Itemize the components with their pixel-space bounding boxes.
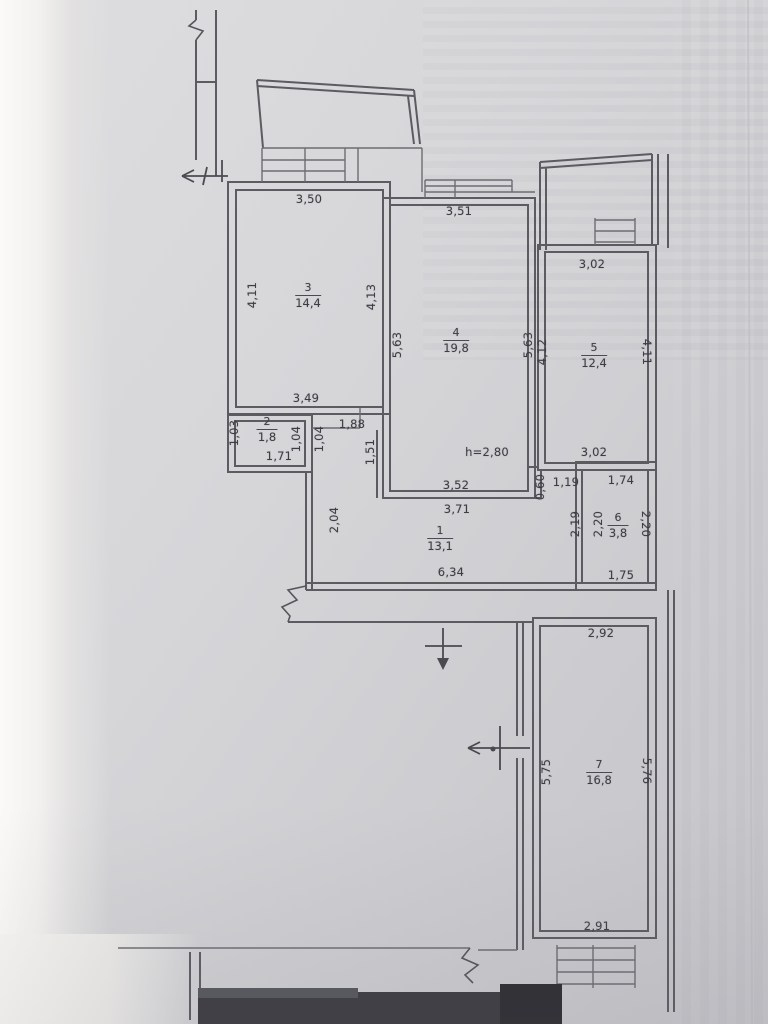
room-number: 7	[586, 759, 612, 773]
dim-r4-left: 5,63	[390, 332, 404, 358]
room-label-4: 4 19,8	[443, 327, 469, 355]
dim-r5-right: 4,11	[640, 339, 654, 365]
dim-r7-left: 5,75	[539, 759, 553, 785]
dim-niche-step: 0,60	[533, 474, 547, 500]
dim-niche-depth: 2,19	[568, 511, 582, 537]
dim-r2-left: 1,03	[227, 420, 241, 446]
dim-r6-right: 2,20	[639, 511, 653, 537]
dim-r7-top: 2,92	[588, 626, 614, 640]
room-number: 3	[295, 282, 321, 296]
dim-r3-bottom: 3,49	[293, 391, 319, 405]
room-number: 2	[257, 416, 278, 430]
dim-nook-width: 1,88	[339, 417, 365, 431]
room-area: 16,8	[586, 773, 612, 787]
room-area: 13,1	[427, 539, 453, 553]
dim-r3-top: 3,50	[296, 192, 322, 206]
dim-r6-left: 2,20	[591, 511, 605, 537]
dim-niche-width: 1,19	[553, 475, 579, 489]
dim-r3-right: 4,13	[364, 284, 378, 310]
ceiling-height-label: h=2,80	[465, 445, 509, 459]
room-number: 1	[427, 525, 453, 539]
dim-r5-top: 3,02	[579, 257, 605, 271]
room-area: 12,4	[581, 356, 607, 370]
photo-shadow	[0, 804, 768, 1024]
room-number: 5	[581, 342, 607, 356]
dim-r4-bottom-inner: 3,52	[443, 478, 469, 492]
room-area: 3,8	[608, 526, 629, 540]
room-area: 1,8	[257, 430, 278, 444]
room-area: 14,4	[295, 296, 321, 310]
room-number: 4	[443, 327, 469, 341]
room-label-3: 3 14,4	[295, 282, 321, 310]
room-label-6: 6 3,8	[608, 512, 629, 540]
dim-corridor-bottom: 6,34	[438, 565, 464, 579]
dim-corridor-left: 2,04	[327, 507, 341, 533]
room-label-2: 2 1,8	[257, 416, 278, 444]
dim-r2-right: 1,04	[289, 426, 303, 452]
dim-r5-bottom: 3,02	[581, 445, 607, 459]
dim-r5-left: 4,12	[535, 339, 549, 365]
floor-plan-photo: 3,50 3,51 3,02 3,49 1,88 1,71 h=2,80 3,5…	[0, 0, 768, 1024]
dim-r4-bottom-outer: 3,71	[444, 502, 470, 516]
dim-r6-top: 1,74	[608, 473, 634, 487]
room-label-1: 1 13,1	[427, 525, 453, 553]
room-label-7: 7 16,8	[586, 759, 612, 787]
dim-r4-top: 3,51	[446, 204, 472, 218]
dim-wall-right-of-r2: 1,04	[312, 426, 326, 452]
dim-r7-right: 5,76	[640, 758, 654, 784]
dim-r4-right: 5,63	[521, 332, 535, 358]
room-label-5: 5 12,4	[581, 342, 607, 370]
dim-r6-bottom: 1,75	[608, 568, 634, 582]
dim-nook-height: 1,51	[363, 439, 377, 465]
entry-arrows	[182, 167, 530, 770]
room-area: 19,8	[443, 341, 469, 355]
room-number: 6	[608, 512, 629, 526]
dim-r3-left: 4,11	[245, 282, 259, 308]
